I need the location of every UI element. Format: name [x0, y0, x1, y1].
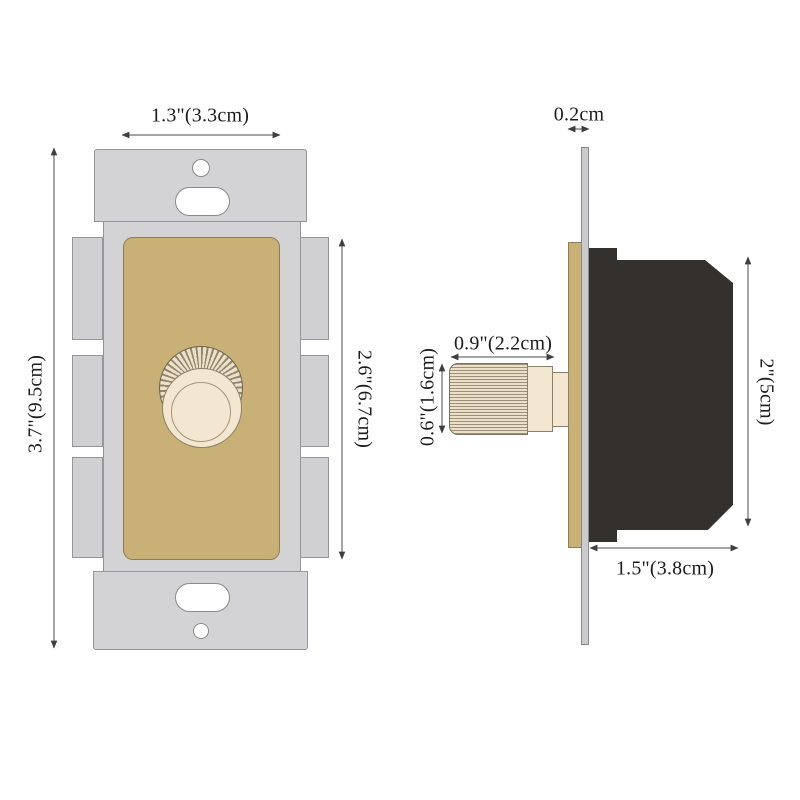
label-wallplate-thickness: 0.2cm: [554, 104, 604, 127]
label-overall-height: 3.7"(9.5cm): [25, 355, 48, 453]
label-plate-width: 1.3"(3.3cm): [151, 105, 249, 128]
label-body-depth: 1.5"(3.8cm): [616, 558, 714, 581]
label-knob-diameter: 0.6"(1.6cm): [417, 348, 440, 446]
dimmer-switch-dimension-diagram: 1.3"(3.3cm) 3.7"(9.5cm) 2.6"(6.7cm) 0.2c…: [0, 0, 800, 800]
label-body-height: 2"(5cm): [755, 358, 778, 425]
label-faceplate-height: 2.6"(6.7cm): [353, 350, 376, 448]
dimension-lines: [0, 0, 800, 800]
label-knob-depth: 0.9"(2.2cm): [454, 333, 552, 356]
